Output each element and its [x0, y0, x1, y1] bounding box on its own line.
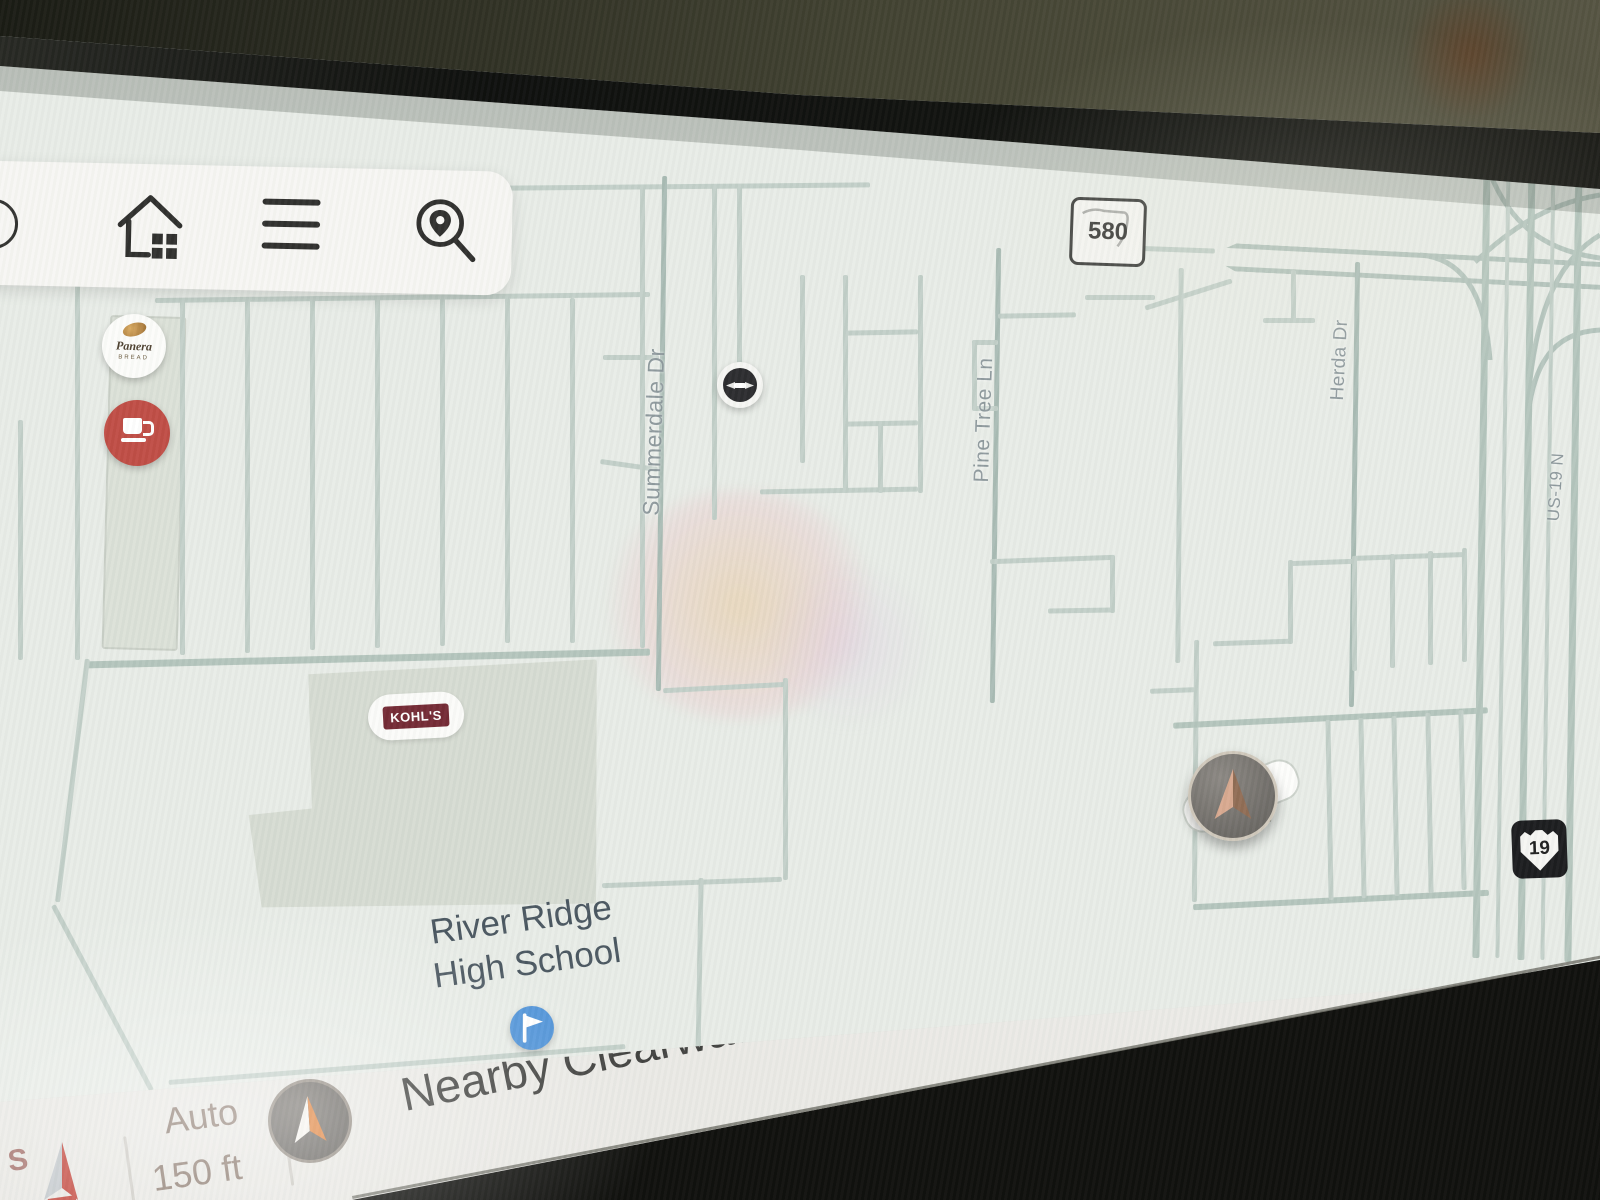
road-segment — [375, 298, 380, 648]
road-segment — [878, 421, 883, 493]
road-segment — [1048, 607, 1114, 613]
road-segment — [440, 298, 445, 646]
zoom-scale: 150 ft — [150, 1146, 245, 1200]
road-segment — [1428, 551, 1433, 665]
road-segment — [51, 904, 154, 1092]
road-segment — [1144, 278, 1232, 310]
road-segment — [800, 275, 805, 463]
road-segment — [663, 682, 788, 694]
bar-divider — [123, 1136, 136, 1200]
coffee-saucer — [121, 438, 146, 442]
road-segment — [180, 298, 185, 655]
road-segment — [1458, 710, 1466, 890]
business-poi-badge[interactable] — [717, 362, 763, 408]
route-shield-19-number: 19 — [1529, 838, 1551, 861]
location-chip[interactable] — [268, 1079, 352, 1163]
road-segment — [1288, 559, 1354, 566]
compass-south-label: S — [6, 1143, 31, 1179]
flag-icon — [510, 1006, 554, 1050]
road-segment — [1425, 713, 1433, 893]
street-label-herda: Herda Dr — [1327, 319, 1353, 401]
road-segment — [155, 292, 650, 303]
road-segment — [505, 298, 510, 643]
panera-bread-icon — [121, 320, 148, 339]
road-segment — [310, 298, 315, 650]
chip-arrow-icon — [287, 1095, 330, 1144]
road-segment — [737, 184, 742, 384]
road-segment — [245, 298, 250, 653]
map-toolbar — [0, 160, 513, 295]
road-segment — [1263, 318, 1315, 323]
road-segment — [1325, 720, 1333, 900]
road-segment — [1352, 556, 1357, 671]
road-segment — [505, 182, 870, 190]
vehicle-arrow-icon — [1210, 769, 1256, 819]
compass: S — [0, 1130, 110, 1200]
street-label-pine-tree: Pine Tree Ln — [970, 357, 998, 483]
interchange-ramps — [1390, 150, 1600, 430]
compass-needle-icon — [28, 1140, 94, 1200]
road-segment — [1213, 639, 1291, 647]
kohls-label: KOHL'S — [383, 703, 450, 729]
coffee-cup-handle — [143, 421, 154, 436]
kohls-label-pill[interactable]: KOHL'S — [367, 691, 465, 742]
photo-of-car-display: Summerdale Dr Pine Tree Ln Herda Dr US-1… — [0, 0, 1600, 1200]
search-location-icon[interactable] — [407, 190, 485, 272]
road-segment — [1193, 890, 1489, 910]
road-segment — [1085, 295, 1155, 300]
road-segment — [1358, 718, 1366, 898]
badge-logo-icon — [723, 368, 757, 402]
road-segment — [918, 275, 923, 493]
road-segment — [1291, 270, 1296, 320]
road-segment — [695, 878, 703, 1065]
road-segment — [1391, 716, 1399, 896]
road-segment — [570, 298, 575, 643]
road-segment — [1352, 552, 1464, 561]
panera-poi-name: Panera — [102, 338, 166, 355]
zoom-mode: Auto — [150, 1090, 245, 1144]
road-segment — [1175, 268, 1183, 663]
road-segment — [75, 285, 80, 660]
road-segment — [1110, 555, 1115, 613]
road-segment — [990, 555, 1115, 564]
road-segment — [712, 184, 717, 520]
vehicle-marker[interactable] — [1188, 751, 1278, 841]
street-label-summerdale: Summerdale Dr — [638, 348, 671, 516]
partial-icon[interactable] — [0, 198, 19, 249]
road-segment — [18, 420, 23, 660]
home-icon[interactable] — [111, 185, 189, 265]
road-segment — [1390, 554, 1395, 668]
road-segment — [843, 275, 848, 493]
road-segment — [1150, 687, 1195, 694]
road-segment — [998, 312, 1076, 318]
road-segment — [760, 487, 918, 495]
road-segment — [843, 329, 918, 335]
road-segment — [1462, 548, 1467, 662]
school-flag-marker[interactable] — [510, 1006, 554, 1050]
coffee-cup-icon — [123, 418, 142, 434]
menu-icon[interactable] — [261, 199, 320, 260]
road-segment — [55, 659, 90, 903]
route-shield-580: 580 — [1069, 197, 1147, 268]
road-segment — [1288, 560, 1293, 644]
street-label-us19: US-19 N — [1544, 452, 1569, 522]
route-shield-19: 19 — [1511, 819, 1568, 879]
zoom-control[interactable]: Auto 150 ft — [152, 1096, 242, 1194]
road-segment — [783, 678, 788, 880]
coffee-poi-marker[interactable] — [104, 400, 170, 466]
panera-poi-sub: BREAD — [101, 354, 165, 362]
route-shield-580-number: 580 — [1087, 217, 1128, 246]
